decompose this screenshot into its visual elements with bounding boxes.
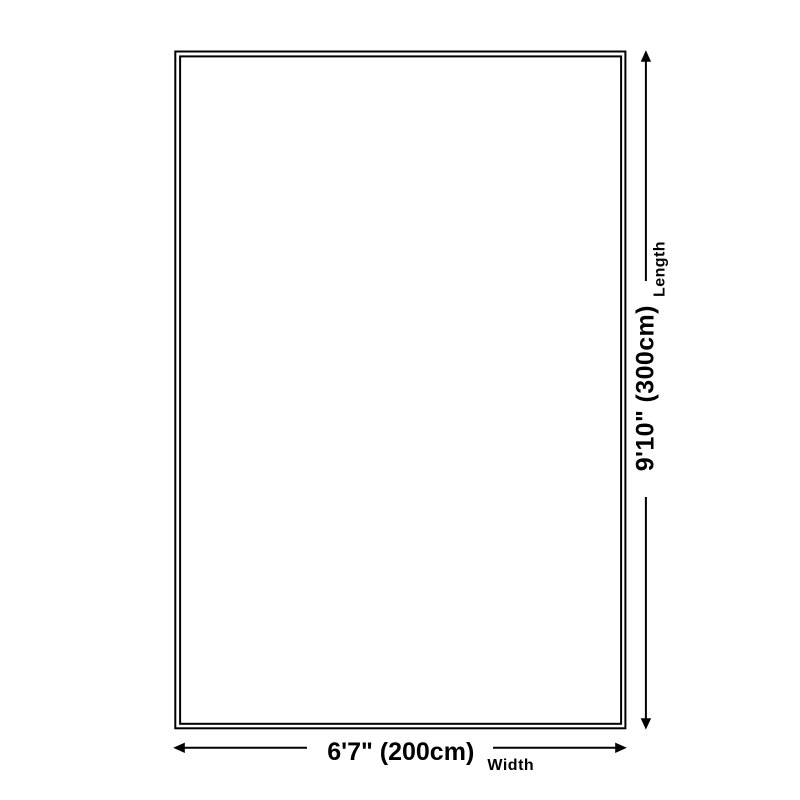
svg-text:6'7" (200cm): 6'7" (200cm) (327, 738, 474, 766)
svg-text:9'10" (300cm): 9'10" (300cm) (631, 305, 659, 471)
svg-text:Width: Width (487, 757, 534, 774)
svg-text:Length: Length (652, 241, 669, 297)
